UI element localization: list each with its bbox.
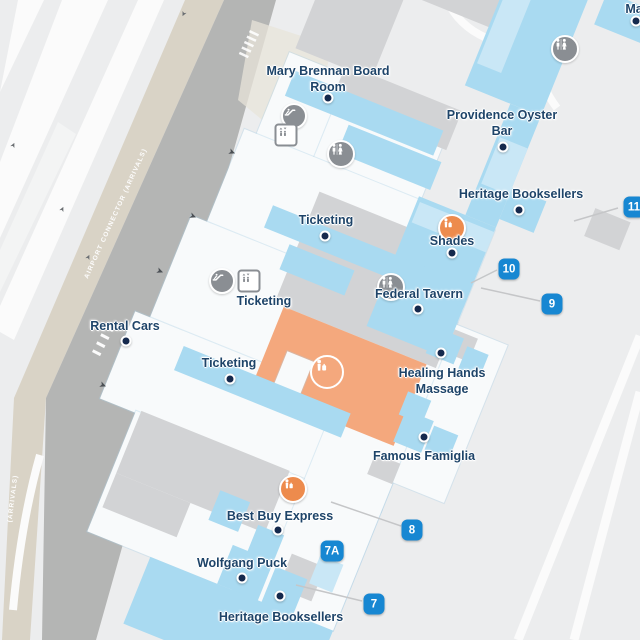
poi-dot-famous-famiglia[interactable] [419,432,430,443]
poi-label-rental-cars[interactable]: Rental Cars [90,318,159,334]
elevator-icon [238,270,261,293]
poi-dot-federal-tavern[interactable] [413,304,424,315]
poi-dot-rental-cars[interactable] [121,336,132,347]
gate-badge-11[interactable]: 11 [624,197,640,218]
traveler-service-icon [310,355,344,389]
traveler-service-icon [279,475,307,503]
poi-dot-heritage-north[interactable] [514,205,525,216]
poi-label-heritage-north[interactable]: Heritage Booksellers [459,186,583,202]
gate-badge-10[interactable]: 10 [499,259,520,280]
map-canvas[interactable]: AIRPORT CONNECTOR (ARRIVALS) (ARRIVALS) [0,0,640,640]
poi-label-ticketing-north[interactable]: Ticketing [299,212,354,228]
poi-dot-healing-hands[interactable] [436,348,447,359]
gate-badge-9[interactable]: 9 [542,294,563,315]
poi-label-clipped[interactable]: Ma [625,1,640,17]
poi-label-famous-famiglia[interactable]: Famous Famiglia [373,448,475,464]
poi-dot-ticketing-south[interactable] [225,374,236,385]
poi-dot-clipped[interactable] [631,16,640,27]
restroom-icon [551,35,579,63]
poi-dot-wolfgang-puck[interactable] [237,573,248,584]
poi-dot-shades[interactable] [447,248,458,259]
poi-label-wolfgang-puck[interactable]: Wolfgang Puck [197,555,287,571]
poi-label-ticketing-south[interactable]: Ticketing [202,355,257,371]
elevator-icon [275,124,298,147]
restroom-icon [327,140,355,168]
poi-label-mary-brennan[interactable]: Mary Brennan Board Room [258,63,398,95]
poi-dot-heritage-south[interactable] [275,591,286,602]
gate-badge-8[interactable]: 8 [402,520,423,541]
escalator-icon [209,268,235,294]
poi-dot-ticketing-north[interactable] [320,231,331,242]
poi-label-oyster-bar[interactable]: Providence Oyster Bar [443,107,561,139]
poi-label-best-buy[interactable]: Best Buy Express [227,508,333,524]
gate-badge-7a[interactable]: 7A [321,541,344,562]
poi-dot-oyster-bar[interactable] [498,142,509,153]
poi-label-shades[interactable]: Shades [430,233,474,249]
gate-badge-7[interactable]: 7 [364,594,385,615]
poi-label-federal-tavern[interactable]: Federal Tavern [375,286,463,302]
poi-label-heritage-south[interactable]: Heritage Booksellers [219,609,343,625]
poi-label-healing-hands[interactable]: Healing Hands Massage [390,365,495,397]
poi-label-ticketing-middle[interactable]: Ticketing [237,293,292,309]
poi-dot-best-buy[interactable] [273,525,284,536]
